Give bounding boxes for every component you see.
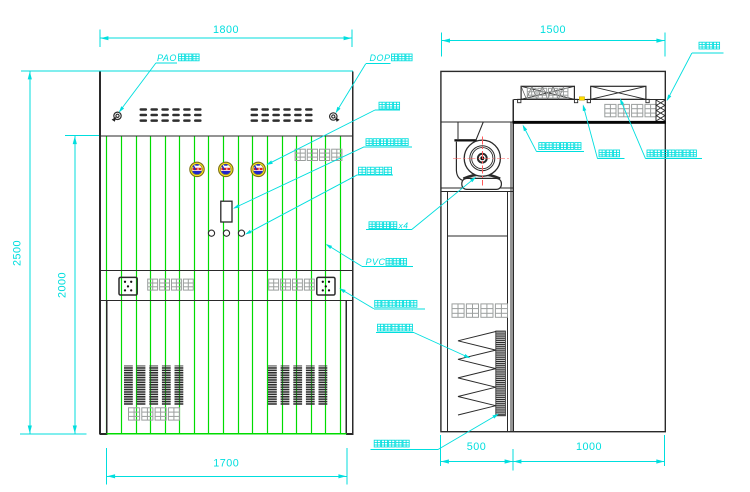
svg-text:2500: 2500	[12, 240, 24, 266]
svg-text:DOP: DOP	[370, 53, 391, 63]
svg-text:1800: 1800	[213, 24, 239, 36]
svg-text:1500: 1500	[540, 24, 566, 36]
svg-text:500: 500	[467, 441, 487, 453]
svg-text:x4: x4	[398, 220, 409, 230]
svg-text:PVC: PVC	[366, 257, 386, 267]
svg-text:1700: 1700	[213, 458, 239, 470]
svg-text:PAO: PAO	[157, 53, 177, 63]
svg-text:2000: 2000	[57, 272, 69, 298]
svg-text:1000: 1000	[576, 441, 602, 453]
